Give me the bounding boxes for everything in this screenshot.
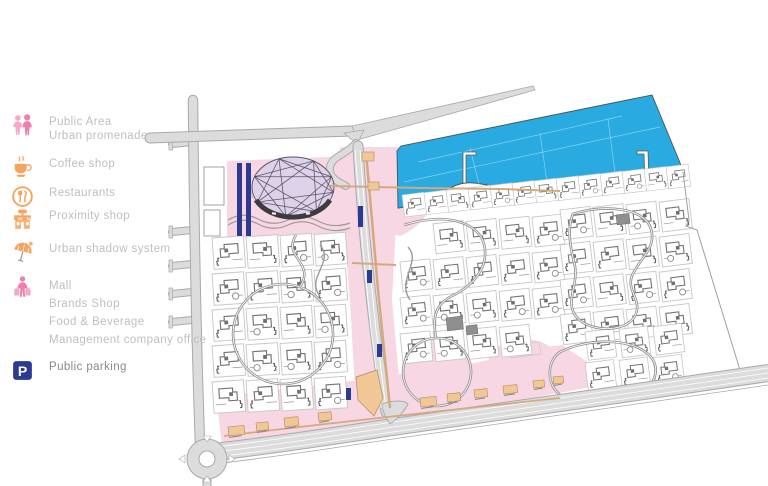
legend-item-mall: MallBrands ShopFood & BeverageManagement… bbox=[10, 275, 206, 349]
legend-label-public-parking: Public parking bbox=[49, 358, 127, 375]
villa-plot bbox=[400, 295, 433, 328]
parking-pad bbox=[367, 270, 372, 283]
villa-plot bbox=[280, 233, 314, 267]
villa-plot bbox=[556, 176, 581, 201]
fork-knife-circle-icon bbox=[10, 184, 35, 209]
shopper-icon bbox=[10, 275, 35, 300]
villa-plot bbox=[314, 232, 348, 266]
villa-plot bbox=[593, 274, 626, 307]
villa-plot bbox=[532, 286, 565, 319]
parking-pad bbox=[346, 388, 351, 400]
villa-plot bbox=[644, 166, 669, 191]
legend-label-mall: MallBrands ShopFood & BeverageManagement… bbox=[49, 275, 206, 349]
site-boundary bbox=[683, 172, 740, 370]
villa-plot bbox=[593, 239, 626, 272]
villa-plot bbox=[433, 221, 466, 254]
villa-plot bbox=[499, 288, 532, 321]
villa-plot bbox=[424, 190, 449, 215]
legend-label-proximity-shop: Proximity shop bbox=[49, 207, 130, 224]
villa-plot bbox=[659, 269, 692, 302]
villa-plot bbox=[532, 250, 565, 283]
parasol-icon bbox=[10, 240, 35, 265]
legend-label-coffee-shop: Coffee shop bbox=[49, 155, 115, 172]
legend-item-restaurants: Restaurants bbox=[10, 184, 115, 209]
coffee-cup-icon bbox=[10, 155, 35, 180]
legend-item-public-parking: PPublic parking bbox=[10, 358, 127, 383]
villa-plot bbox=[666, 164, 691, 189]
villa-plot bbox=[532, 214, 565, 247]
villa-plot bbox=[560, 206, 593, 239]
mall-parking-strip bbox=[237, 163, 242, 236]
legend-item-proximity-shop: Proximity shop bbox=[10, 207, 130, 232]
villa-plot bbox=[246, 235, 280, 269]
parking-icon: P bbox=[10, 358, 35, 383]
villa-plot bbox=[433, 329, 466, 362]
villa-plot bbox=[466, 218, 499, 251]
villa-plot bbox=[499, 252, 532, 285]
people-icon bbox=[10, 113, 35, 138]
villa-plot bbox=[246, 307, 280, 341]
villa-plot bbox=[499, 216, 532, 249]
villa-plot bbox=[402, 192, 427, 217]
mall-parking-strip bbox=[246, 163, 251, 236]
mall-dome bbox=[252, 157, 334, 217]
svg-text:P: P bbox=[18, 363, 27, 379]
villa-plot bbox=[446, 188, 471, 213]
villa-plot bbox=[560, 241, 593, 274]
villa-plot bbox=[622, 169, 647, 194]
legend-item-public-area: Public AreaUrban promenade bbox=[10, 113, 148, 143]
villa-plot bbox=[490, 183, 515, 208]
villa-plot bbox=[560, 276, 593, 309]
legend: Public AreaUrban promenadeCoffee shopRes… bbox=[0, 0, 230, 486]
legend-label-urban-shadow-system: Urban shadow system bbox=[49, 240, 170, 257]
villa-plot bbox=[280, 341, 314, 375]
villa-plot bbox=[653, 323, 685, 355]
legend-item-coffee-shop: Coffee shop bbox=[10, 155, 115, 180]
villa-plot bbox=[659, 234, 692, 267]
villa-plot bbox=[400, 259, 433, 292]
villa-plot bbox=[466, 290, 499, 323]
legend-label-public-area: Public AreaUrban promenade bbox=[49, 113, 148, 143]
villa-plot bbox=[585, 329, 617, 361]
villa-plot bbox=[512, 181, 537, 206]
villa-plot bbox=[499, 324, 532, 357]
parking-pad bbox=[358, 206, 363, 227]
urban-masterplan-page: Public AreaUrban promenadeCoffee shopRes… bbox=[0, 0, 768, 486]
villa-plot bbox=[433, 257, 466, 290]
villa-plot bbox=[280, 305, 314, 339]
storefront-icon bbox=[10, 207, 35, 232]
villa-plot bbox=[600, 171, 625, 196]
parking-pad bbox=[377, 344, 382, 357]
legend-item-urban-shadow-system: Urban shadow system bbox=[10, 240, 170, 265]
villa-plot bbox=[578, 173, 603, 198]
villa-plot bbox=[626, 236, 659, 269]
legend-label-restaurants: Restaurants bbox=[49, 184, 115, 201]
villa-plot bbox=[314, 376, 348, 410]
